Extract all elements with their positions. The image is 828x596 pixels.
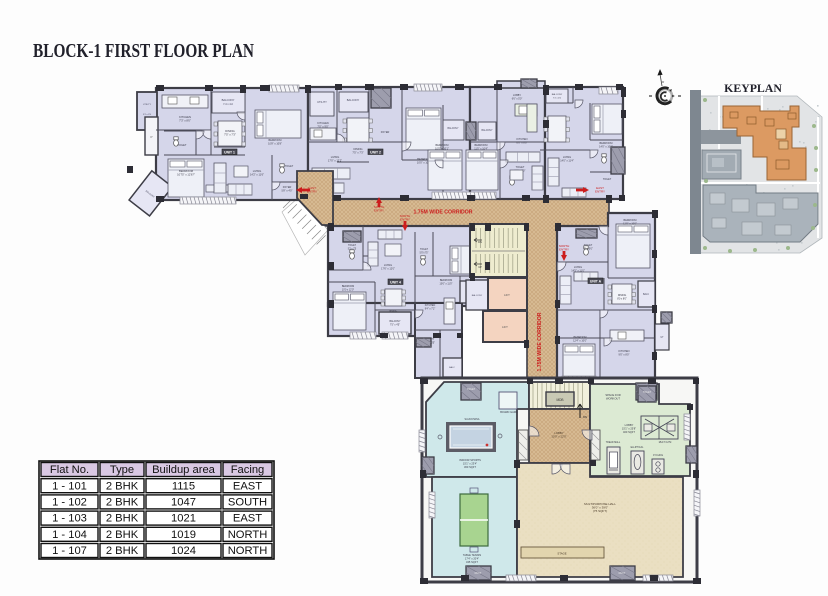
svg-text:BALCONY: BALCONY	[552, 93, 563, 96]
svg-text:KEYPLAN: KEYPLAN	[724, 81, 782, 95]
svg-text:ENTRY: ENTRY	[307, 189, 317, 193]
svg-text:5'2 x 3'5: 5'2 x 3'5	[143, 114, 152, 116]
svg-text:14'5" x 11'0": 14'5" x 11'0"	[571, 270, 585, 273]
svg-text:5'2 x 7'5: 5'2 x 7'5	[348, 249, 357, 251]
svg-text:KITCHEN: KITCHEN	[425, 304, 436, 307]
svg-text:LIVING: LIVING	[253, 169, 262, 173]
svg-text:BOARD GAME: BOARD GAME	[500, 410, 518, 414]
svg-text:UNIT 4: UNIT 4	[390, 280, 401, 284]
svg-text:BLOCK-1 FIRST FLOOR PLAN: BLOCK-1 FIRST FLOOR PLAN	[33, 40, 254, 62]
svg-text:LIVING: LIVING	[384, 264, 392, 267]
svg-text:TOILET: TOILET	[285, 165, 294, 168]
svg-text:1115: 1115	[172, 480, 195, 492]
svg-text:ENTRY: ENTRY	[595, 189, 605, 193]
svg-text:11'0" x 10'4": 11'0" x 10'4"	[474, 148, 488, 151]
svg-text:ENTRY: ENTRY	[559, 247, 569, 251]
svg-text:ENTRY: ENTRY	[374, 208, 384, 212]
svg-text:10'75" x 12'67": 10'75" x 12'67"	[177, 173, 195, 177]
svg-text:1 - 103: 1 - 103	[52, 513, 87, 525]
svg-text:BEDROOM: BEDROOM	[624, 219, 637, 222]
svg-text:Buildup area: Buildup area	[152, 464, 216, 476]
svg-text:BALCONY: BALCONY	[472, 294, 483, 297]
svg-text:1 - 102: 1 - 102	[52, 497, 87, 509]
svg-text:2 BHK: 2 BHK	[106, 497, 139, 509]
svg-text:ELLIPTICAL: ELLIPTICAL	[631, 446, 644, 449]
svg-text:TOILET: TOILET	[177, 143, 186, 147]
svg-text:7-4 x 4-0: 7-4 x 4-0	[223, 103, 233, 106]
svg-text:KITCHEN: KITCHEN	[179, 115, 191, 119]
svg-text:14'2" x 11'6": 14'2" x 11'6"	[250, 173, 264, 177]
svg-text:DN: DN	[583, 415, 587, 419]
svg-text:LIFT: LIFT	[502, 325, 508, 329]
svg-text:2 BHK: 2 BHK	[106, 529, 139, 541]
svg-text:1019: 1019	[171, 529, 196, 541]
svg-text:BEDROOM: BEDROOM	[269, 139, 282, 142]
svg-text:BALCONY: BALCONY	[222, 98, 235, 102]
svg-text:UNIT A: UNIT A	[590, 279, 602, 283]
svg-text:DINING: DINING	[225, 129, 234, 133]
svg-text:TOILET: TOILET	[420, 249, 429, 251]
svg-text:UP: UP	[478, 265, 482, 269]
svg-text:7'5" x 7'3": 7'5" x 7'3"	[352, 151, 363, 155]
svg-text:DINING: DINING	[353, 147, 362, 151]
svg-text:Type: Type	[110, 464, 134, 476]
svg-text:BALC: BALC	[449, 366, 455, 369]
svg-text:2 BHK: 2 BHK	[106, 513, 139, 525]
svg-text:6'6" x 5'0": 6'6" x 5'0"	[512, 98, 523, 101]
svg-text:1.75M WIDE CORRIDOR: 1.75M WIDE CORRIDOR	[537, 312, 543, 371]
svg-text:8'0 x 8'0": 8'0 x 8'0"	[617, 298, 627, 301]
svg-text:12'4" x 10'0": 12'4" x 10'0"	[573, 340, 587, 343]
svg-text:DN: DN	[478, 240, 482, 244]
svg-text:7'2 x 4'0: 7'2 x 4'0	[553, 98, 562, 100]
svg-text:17'0" x 12'2": 17'0" x 12'2"	[328, 159, 342, 163]
svg-text:SAUCKHANA: SAUCKHANA	[465, 418, 480, 421]
svg-text:(75 SQFT): (75 SQFT)	[593, 509, 607, 513]
svg-text:400 SQFT: 400 SQFT	[623, 430, 635, 434]
svg-text:KITCHEN: KITCHEN	[517, 138, 528, 141]
svg-text:345 SQFT: 345 SQFT	[466, 560, 478, 564]
svg-text:FOYER: FOYER	[381, 131, 390, 134]
svg-text:TOILET: TOILET	[467, 389, 476, 391]
svg-text:ENTRY: ENTRY	[400, 217, 410, 221]
svg-text:BEDROOM: BEDROOM	[342, 285, 354, 288]
svg-text:UTILITY: UTILITY	[143, 104, 152, 106]
svg-text:STAGE: STAGE	[557, 552, 566, 556]
svg-text:5'8" x 4'0": 5'8" x 4'0"	[282, 190, 293, 193]
svg-text:7'5" x 4'5": 7'5" x 4'5"	[390, 325, 400, 327]
svg-text:INDOOR SPORTS: INDOOR SPORTS	[459, 458, 481, 462]
svg-text:BALCONY: BALCONY	[482, 129, 493, 132]
svg-text:SOUTH: SOUTH	[228, 497, 267, 509]
svg-text:12'0" x 10'0": 12'0" x 10'0"	[623, 223, 637, 226]
svg-text:BALC: BALC	[643, 293, 649, 296]
svg-text:LIVING: LIVING	[331, 155, 340, 159]
svg-text:10'0 x 12'0": 10'0 x 12'0"	[342, 289, 354, 292]
svg-text:KITCHEN: KITCHEN	[619, 350, 630, 353]
svg-text:LIVING: LIVING	[563, 156, 571, 159]
svg-text:CYCLING: CYCLING	[653, 455, 663, 457]
svg-text:BALCONY: BALCONY	[347, 98, 360, 102]
svg-text:15'1" x 25'8": 15'1" x 25'8"	[622, 427, 636, 431]
svg-text:DUCT: DUCT	[475, 572, 482, 575]
svg-text:SPACE FOR: SPACE FOR	[605, 393, 620, 397]
svg-text:BEDROOM: BEDROOM	[436, 144, 449, 147]
svg-text:10'8" x 10'8": 10'8" x 10'8"	[268, 143, 282, 146]
svg-text:DINING: DINING	[618, 294, 627, 297]
svg-text:UTILITY: UTILITY	[317, 100, 327, 104]
svg-text:17'4" x 20'4": 17'4" x 20'4"	[465, 557, 479, 561]
svg-text:P: P	[150, 135, 152, 139]
svg-text:BEDROOM: BEDROOM	[440, 279, 452, 282]
svg-text:DUCT: DUCT	[619, 572, 626, 575]
svg-text:5'0"x7'5": 5'0"x7'5"	[420, 253, 429, 255]
svg-text:LOBBY: LOBBY	[513, 94, 521, 97]
svg-text:1 - 101: 1 - 101	[52, 480, 87, 492]
svg-text:300 SQFT: 300 SQFT	[464, 465, 476, 469]
svg-text:1047: 1047	[171, 497, 196, 509]
svg-text:1 - 107: 1 - 107	[52, 545, 87, 557]
svg-text:NORTH: NORTH	[228, 545, 268, 557]
svg-text:BEDROOM: BEDROOM	[179, 169, 194, 173]
svg-text:10'0" x 10'1": 10'0" x 10'1"	[435, 148, 449, 151]
svg-text:1021: 1021	[171, 513, 196, 525]
svg-text:KITCHEN: KITCHEN	[317, 121, 329, 125]
svg-text:TABLE TENNIS: TABLE TENNIS	[463, 553, 481, 557]
svg-text:7'3" x 8'0": 7'3" x 8'0"	[179, 119, 191, 123]
svg-text:TOILET: TOILET	[643, 392, 652, 394]
svg-text:TREAD MALL: TREAD MALL	[606, 441, 621, 444]
svg-text:7'0 x 5'0": 7'0 x 5'0"	[583, 248, 593, 251]
svg-text:2 BHK: 2 BHK	[106, 545, 139, 557]
svg-text:FOYER: FOYER	[283, 186, 292, 189]
svg-text:LIVING: LIVING	[574, 266, 582, 269]
svg-text:MDB: MDB	[556, 398, 563, 402]
svg-text:1 - 104: 1 - 104	[52, 529, 87, 541]
svg-text:BEDROOM: BEDROOM	[475, 144, 488, 147]
svg-text:9'0" x 8'0": 9'0" x 8'0"	[619, 354, 630, 357]
svg-text:TOILET: TOILET	[603, 178, 612, 181]
svg-text:BEDROOM: BEDROOM	[600, 142, 613, 145]
svg-text:TOILET: TOILET	[348, 245, 357, 247]
svg-text:8'0" x 8'0": 8'0" x 8'0"	[517, 142, 528, 145]
svg-text:BALCONY: BALCONY	[448, 127, 459, 130]
svg-text:Flat No.: Flat No.	[50, 464, 89, 476]
svg-text:1024: 1024	[171, 545, 196, 557]
svg-text:UNIT 1: UNIT 1	[224, 150, 235, 154]
svg-text:NORTH: NORTH	[228, 529, 268, 541]
svg-text:1.75M WIDE CORRIDOR: 1.75M WIDE CORRIDOR	[413, 210, 472, 216]
svg-text:10'0" x 22'0": 10'0" x 22'0"	[551, 435, 566, 439]
svg-text:LIFT: LIFT	[504, 293, 510, 297]
svg-text:17'6" x 12'0": 17'6" x 12'0"	[381, 268, 395, 271]
svg-text:EAST: EAST	[233, 513, 262, 525]
svg-text:BEDROOM: BEDROOM	[574, 336, 587, 339]
svg-text:TOILET: TOILET	[516, 166, 525, 169]
svg-text:UNIT 2: UNIT 2	[370, 150, 381, 154]
svg-text:Facing: Facing	[231, 464, 265, 476]
svg-text:BALCONY: BALCONY	[390, 320, 401, 323]
svg-text:TOILET: TOILET	[584, 244, 593, 247]
svg-text:W: W	[662, 81, 665, 84]
svg-text:7'5" x 7'3": 7'5" x 7'3"	[224, 133, 236, 137]
svg-text:2 BHK: 2 BHK	[106, 480, 139, 492]
svg-text:MULTI GYM: MULTI GYM	[659, 442, 672, 444]
svg-text:14'0" x 11'4": 14'0" x 11'4"	[560, 160, 574, 163]
svg-text:9'4" x 7'2": 9'4" x 7'2"	[425, 308, 436, 311]
svg-text:15'1" x 23'4": 15'1" x 23'4"	[463, 462, 477, 466]
svg-text:10'0" x 11'0": 10'0" x 11'0"	[440, 283, 453, 286]
svg-text:EAST: EAST	[233, 480, 262, 492]
svg-text:LOBBY: LOBBY	[625, 423, 634, 427]
svg-text:7'0" x 9'0": 7'0" x 9'0"	[317, 125, 328, 129]
svg-text:WORKOUT: WORKOUT	[606, 397, 620, 401]
